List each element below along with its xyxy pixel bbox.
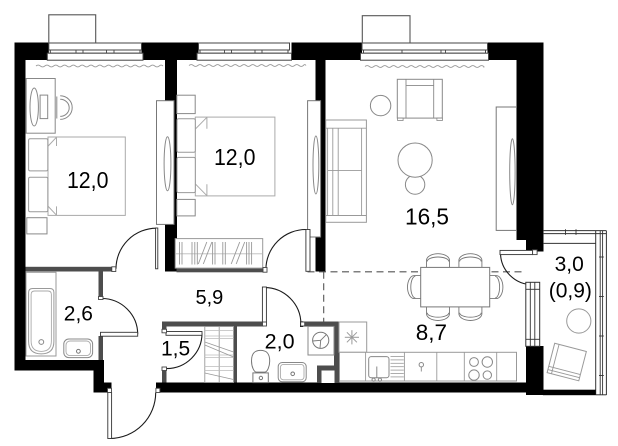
svg-text:16,5: 16,5 [405,204,449,230]
svg-text:5,9: 5,9 [195,287,223,309]
svg-text:8,7: 8,7 [416,320,447,345]
svg-text:2,0: 2,0 [265,330,295,354]
svg-text:12,0: 12,0 [67,167,109,193]
svg-text:2,6: 2,6 [64,303,93,326]
svg-text:(0,9): (0,9) [549,279,592,302]
svg-text:3,0: 3,0 [555,253,584,276]
svg-text:12,0: 12,0 [214,144,256,170]
svg-text:1,5: 1,5 [161,338,190,361]
